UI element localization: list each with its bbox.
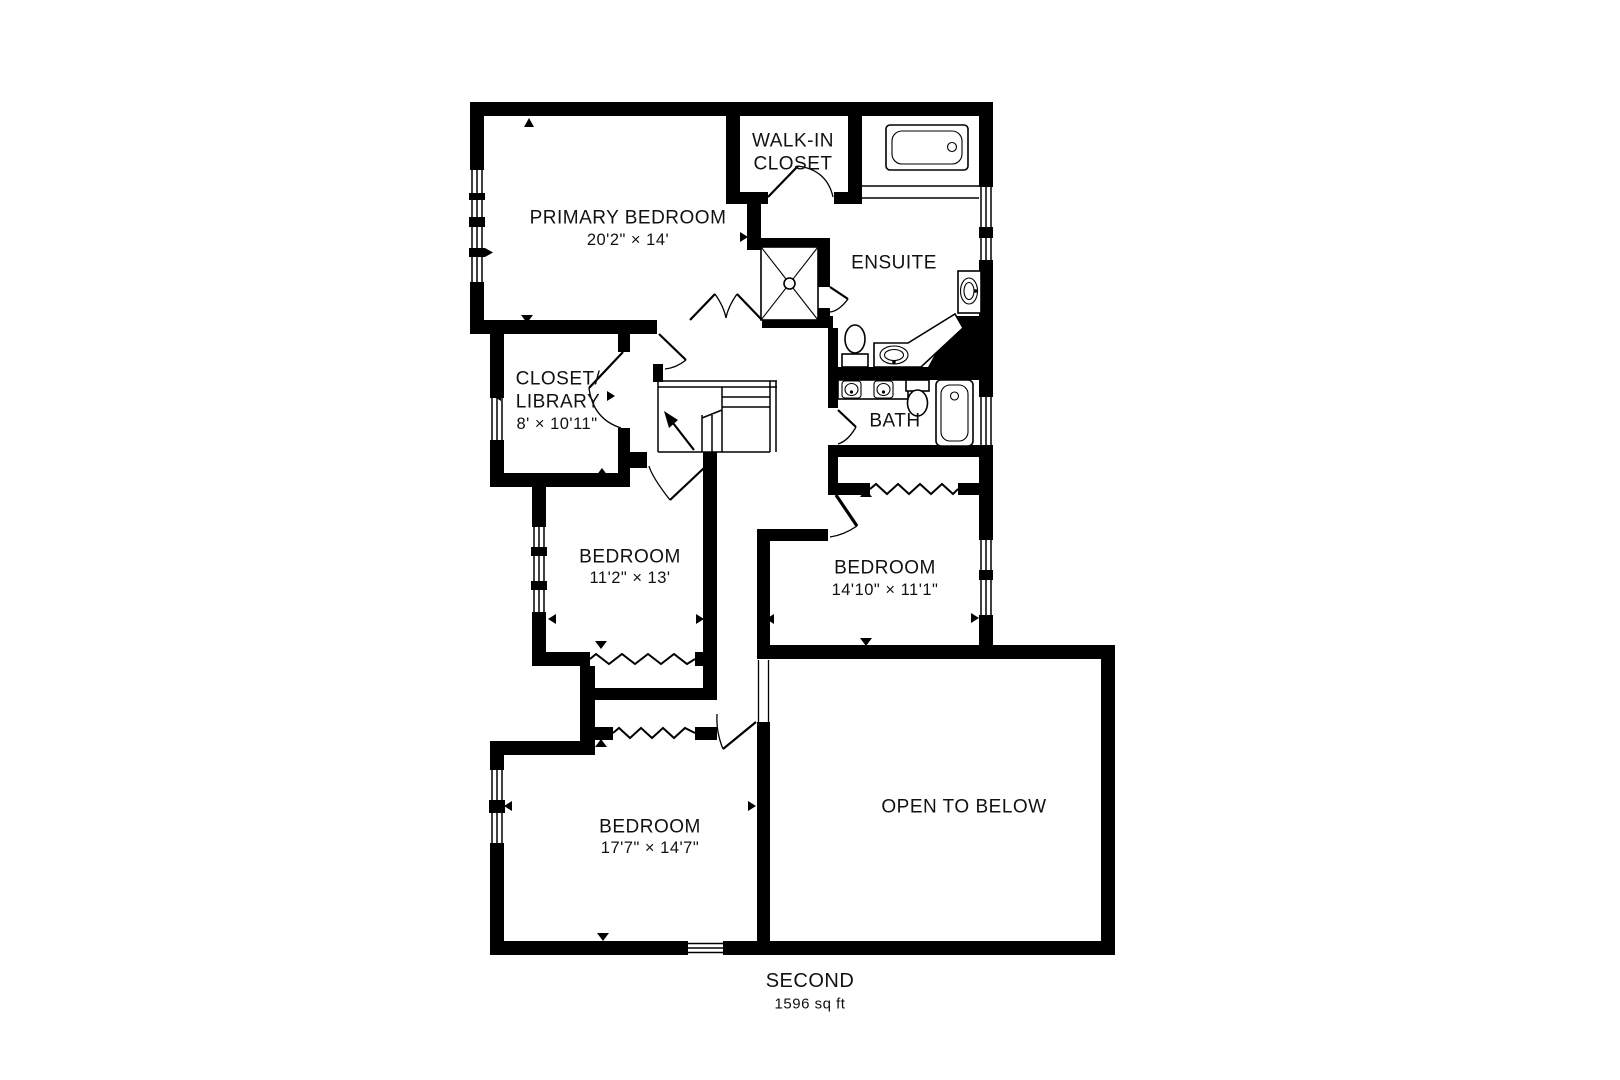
bath-door	[838, 410, 856, 444]
room-dims-primary-bedroom: 20'2" × 14'	[587, 231, 669, 249]
bathtub-bath	[936, 380, 973, 446]
walls	[469, 102, 1115, 955]
room-label-bedroom-2: BEDROOM	[834, 558, 936, 579]
room-dims-bedroom-2: 14'10" × 11'1"	[832, 581, 939, 599]
tub-platform-edge	[862, 186, 979, 198]
room-label-open-to-below: OPEN TO BELOW	[881, 797, 1046, 818]
bathtub-ensuite	[886, 125, 968, 170]
floor-name-label: SECOND	[766, 970, 855, 992]
room-label-closet-library-line2: LIBRARY	[516, 392, 600, 413]
room-dims-closet-library: 8' × 10'11"	[516, 415, 597, 433]
room-label-primary-bedroom: PRIMARY BEDROOM	[530, 208, 727, 229]
room-label-bedroom-1: BEDROOM	[579, 547, 681, 568]
room-label-ensuite: ENSUITE	[851, 253, 937, 274]
pedestal-sink-ensuite	[958, 271, 981, 313]
shower-stall	[761, 247, 818, 320]
room-label-closet-library-line1: CLOSET/	[516, 369, 601, 390]
bedroom-1-door	[649, 466, 704, 500]
floor-plan-page: PRIMARY BEDROOM 20'2" × 14' WALK-IN CLOS…	[0, 0, 1620, 1080]
room-label-bath: BATH	[869, 411, 920, 432]
toilet-ensuite	[842, 325, 868, 367]
shower-door	[830, 287, 848, 312]
stair-direction-arrow	[673, 423, 694, 450]
double-vanity-bath	[838, 380, 908, 399]
room-dims-bedroom-3: 17'7" × 14'7"	[601, 839, 699, 857]
bedroom-3-door	[717, 714, 756, 749]
staircase	[658, 381, 777, 452]
room-label-walk-in-line2: CLOSET	[753, 154, 832, 175]
hall-door	[659, 334, 686, 369]
bedroom-2-door	[830, 495, 857, 537]
room-label-walk-in-line1: WALK-IN	[752, 131, 834, 152]
floor-plan-drawing: PRIMARY BEDROOM 20'2" × 14' WALK-IN CLOS…	[0, 0, 1620, 1080]
dimension-markers	[485, 118, 979, 941]
room-label-bedroom-3: BEDROOM	[599, 817, 701, 838]
floor-area-label: 1596 sq ft	[775, 996, 846, 1013]
open-to-below-doorway	[757, 660, 770, 722]
primary-bedroom-double-door	[690, 294, 762, 320]
room-dims-bedroom-1: 11'2" × 13'	[589, 569, 670, 587]
